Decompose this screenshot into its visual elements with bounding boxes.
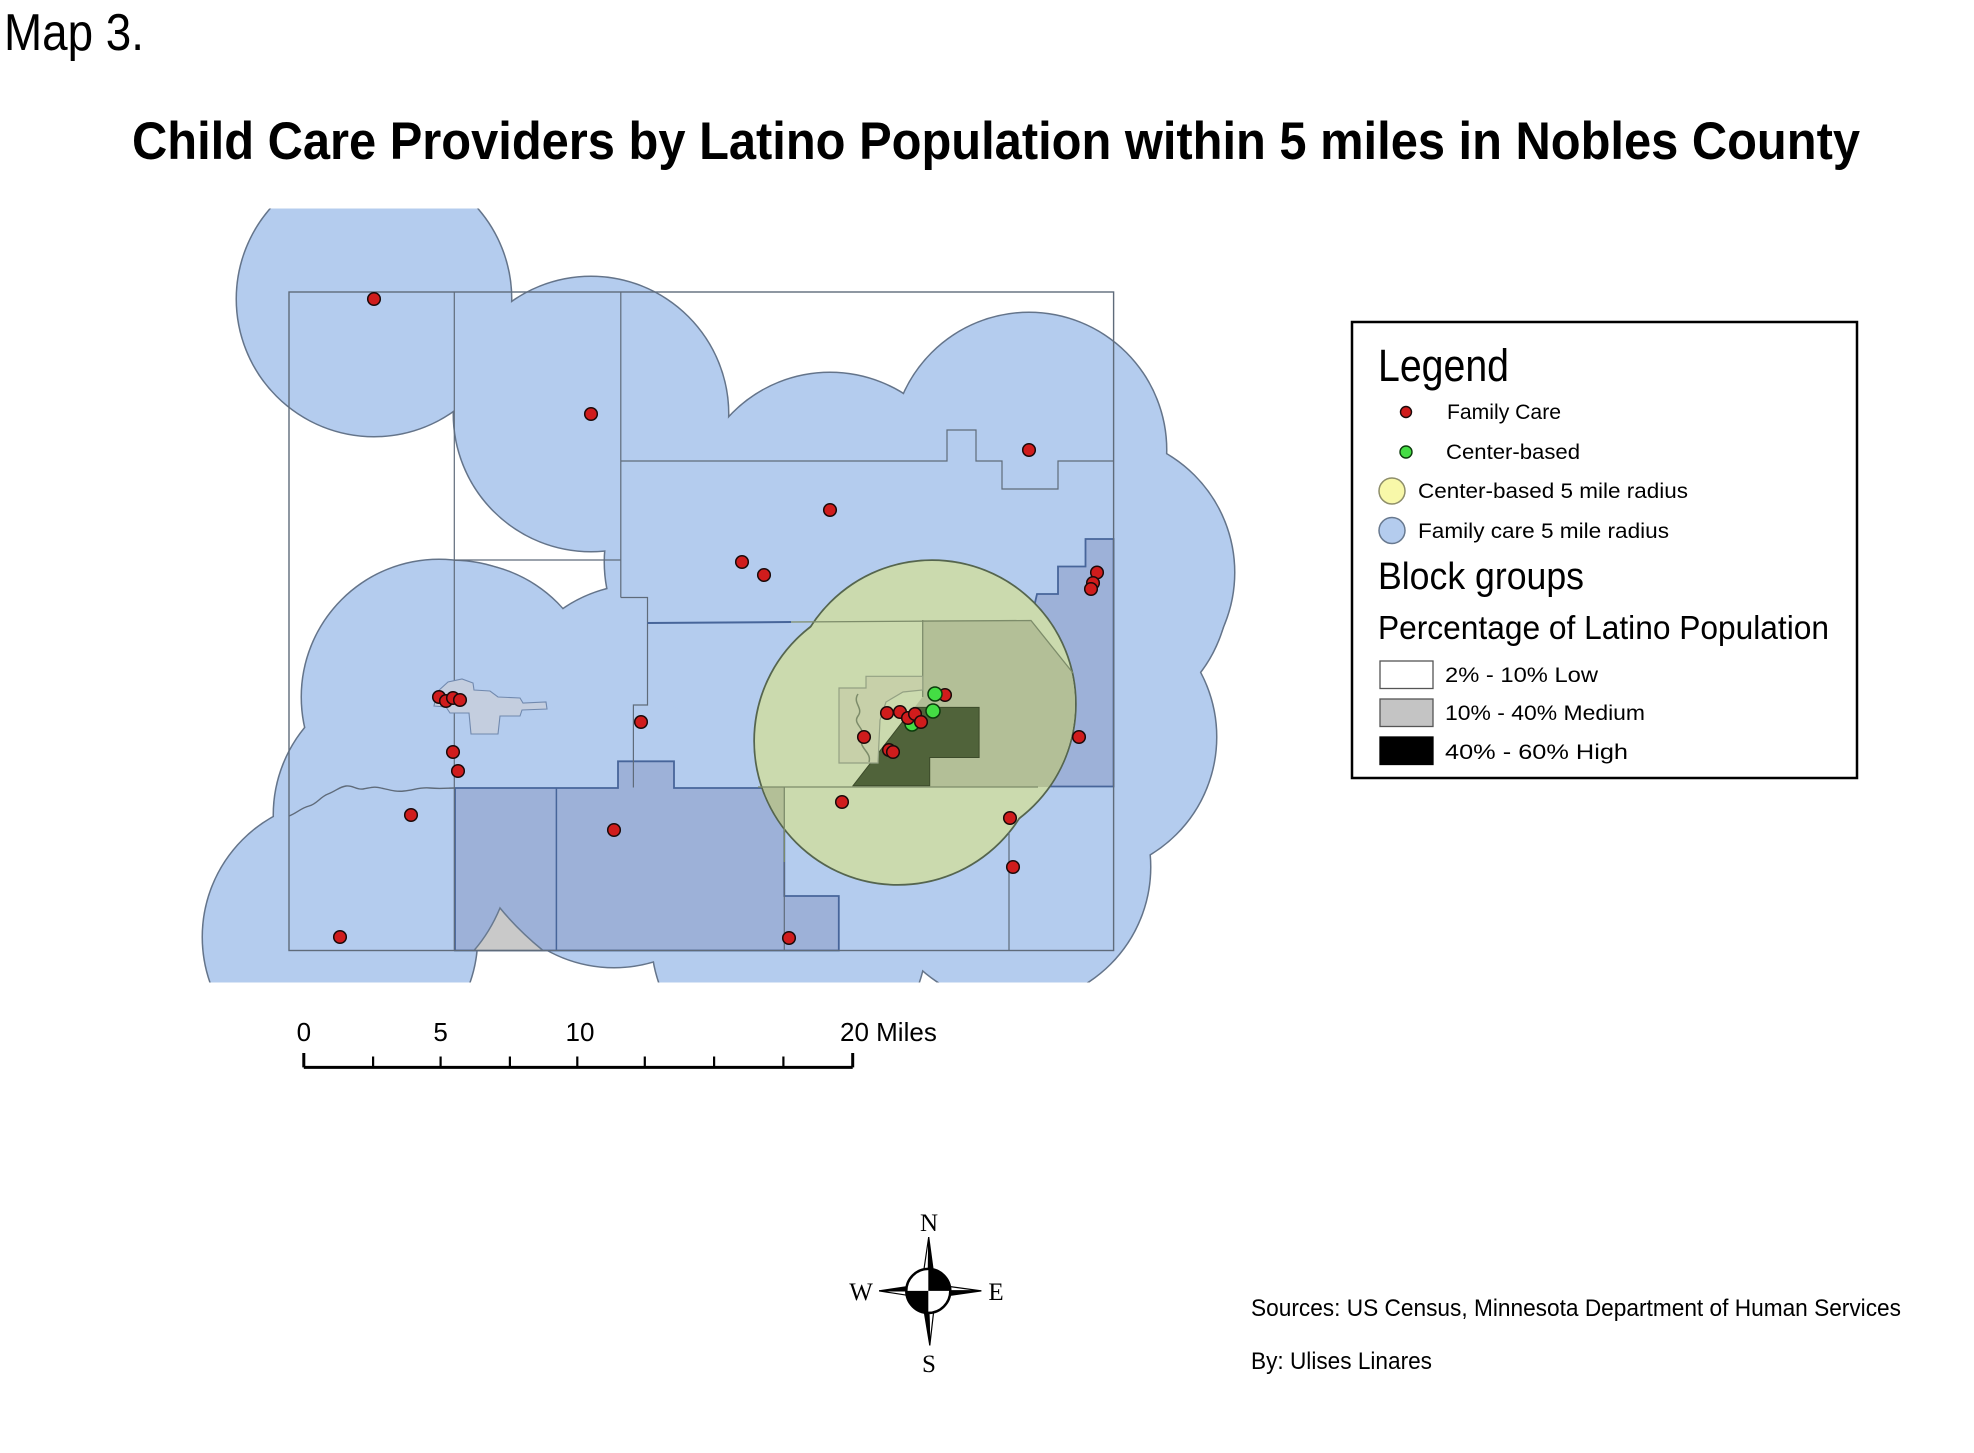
- svg-text:20 Miles: 20 Miles: [840, 1017, 937, 1047]
- svg-text:Legend: Legend: [1378, 340, 1509, 391]
- svg-text:10: 10: [566, 1017, 595, 1047]
- svg-text:By: Ulises Linares: By: Ulises Linares: [1251, 1348, 1432, 1375]
- svg-text:W: W: [849, 1279, 873, 1306]
- svg-text:2% - 10% Low: 2% - 10% Low: [1445, 664, 1599, 687]
- svg-text:E: E: [988, 1279, 1003, 1306]
- svg-text:5: 5: [433, 1017, 447, 1047]
- svg-text:Percentage of Latino Populatio: Percentage of Latino Population: [1378, 609, 1829, 646]
- svg-text:Sources: US Census, Minnesota: Sources: US Census, Minnesota Department…: [1251, 1295, 1901, 1322]
- svg-text:Map 3.: Map 3.: [4, 4, 144, 62]
- svg-text:Center-based 5 mile radius: Center-based 5 mile radius: [1418, 480, 1688, 503]
- svg-text:Block groups: Block groups: [1378, 556, 1584, 598]
- svg-text:S: S: [922, 1351, 936, 1378]
- svg-text:Center-based: Center-based: [1446, 441, 1580, 464]
- svg-text:0: 0: [297, 1017, 311, 1047]
- svg-text:N: N: [920, 1210, 938, 1237]
- svg-text:10% - 40% Medium: 10% - 40% Medium: [1445, 702, 1645, 725]
- svg-text:Family Care: Family Care: [1447, 401, 1561, 424]
- svg-text:Child Care Providers by Latino: Child Care Providers by Latino Populatio…: [132, 112, 1860, 171]
- svg-text:40% - 60% High: 40% - 60% High: [1445, 741, 1628, 764]
- svg-text:Family care 5 mile radius: Family care 5 mile radius: [1418, 520, 1669, 543]
